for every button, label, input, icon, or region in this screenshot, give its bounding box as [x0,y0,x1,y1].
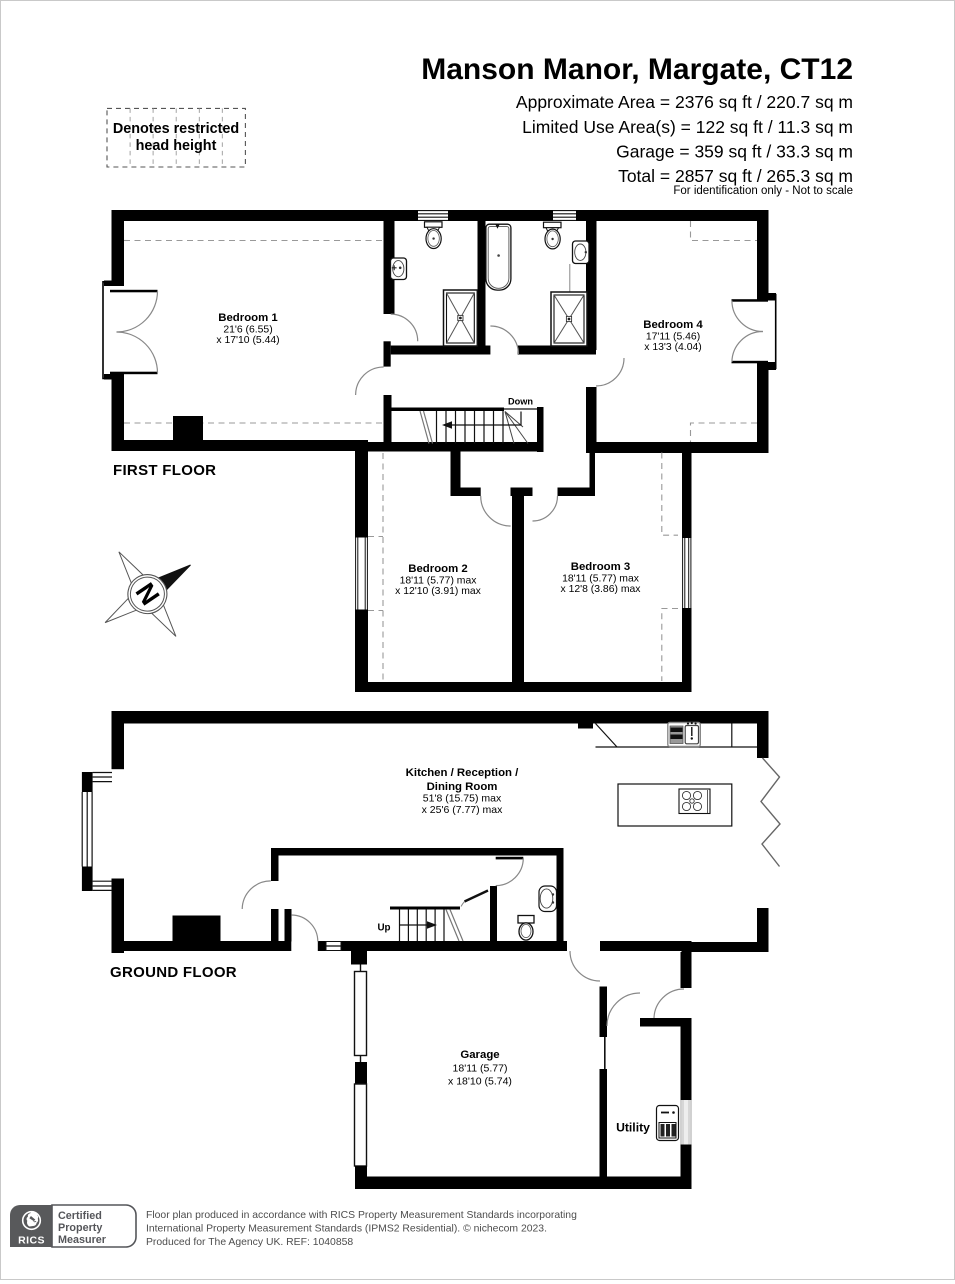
svg-text:Bedroom 1: Bedroom 1 [218,312,278,324]
svg-text:Utility: Utility [616,1121,650,1135]
svg-text:Garage: Garage [460,1049,499,1061]
svg-text:21'6 (6.55): 21'6 (6.55) [223,324,272,335]
svg-text:Manson Manor, Margate, CT12: Manson Manor, Margate, CT12 [421,53,853,86]
svg-text:GROUND FLOOR: GROUND FLOOR [110,964,237,981]
svg-text:Produced for The Agency UK.: Produced for The Agency UK. REF: 1040858 [146,1237,353,1248]
svg-text:x 12'10 (3.91) max: x 12'10 (3.91) max [395,586,482,597]
svg-text:Approximate Area = 2376 sq ft: Approximate Area = 2376 sq ft / 220.7 sq… [516,92,853,112]
svg-text:head height: head height [136,138,217,154]
svg-text:17'11 (5.46): 17'11 (5.46) [646,331,700,342]
svg-text:Down: Down [508,397,533,407]
svg-text:FIRST FLOOR: FIRST FLOOR [113,462,216,479]
svg-text:x 18'10 (5.74): x 18'10 (5.74) [448,1076,512,1088]
svg-text:18'11 (5.77) max: 18'11 (5.77) max [562,573,640,584]
svg-text:x 12'8 (3.86) max: x 12'8 (3.86) max [561,584,642,595]
svg-text:18'11 (5.77): 18'11 (5.77) [453,1063,508,1075]
svg-text:Total = 2857 sq ft / 265.3 sq: Total = 2857 sq ft / 265.3 sq m [618,166,853,186]
svg-text:Bedroom 3: Bedroom 3 [571,561,631,573]
svg-text:Bedroom 2: Bedroom 2 [408,563,468,575]
svg-text:Floor plan produced in accorda: Floor plan produced in accordance with R… [146,1210,577,1221]
svg-text:Bedroom 4: Bedroom 4 [643,319,703,331]
svg-text:Denotes restricted: Denotes restricted [113,121,239,137]
svg-text:International Property Measure: International Property Measurement Stand… [146,1224,547,1235]
svg-text:18'11 (5.77) max: 18'11 (5.77) max [400,575,478,586]
svg-text:Dining Room: Dining Room [427,781,498,793]
svg-text:Measurer: Measurer [58,1234,107,1246]
svg-text:Certified: Certified [58,1210,102,1222]
svg-text:Kitchen / Reception /: Kitchen / Reception / [406,767,519,779]
svg-text:For identification only - Not: For identification only - Not to scale [673,185,853,197]
svg-text:x 13'3 (4.04): x 13'3 (4.04) [644,342,701,353]
svg-text:Up: Up [377,923,390,934]
svg-text:x 25'6 (7.77) max: x 25'6 (7.77) max [422,804,504,816]
svg-text:RICS: RICS [18,1235,45,1247]
svg-text:x 17'10 (5.44): x 17'10 (5.44) [216,335,279,346]
svg-text:Limited Use Area(s) = 122 sq f: Limited Use Area(s) = 122 sq ft / 11.3 s… [522,117,853,137]
svg-text:Garage = 359 sq ft / 33.3 sq m: Garage = 359 sq ft / 33.3 sq m [616,142,853,162]
svg-text:51'8 (15.75) max: 51'8 (15.75) max [423,793,502,805]
svg-text:Property: Property [58,1222,102,1234]
